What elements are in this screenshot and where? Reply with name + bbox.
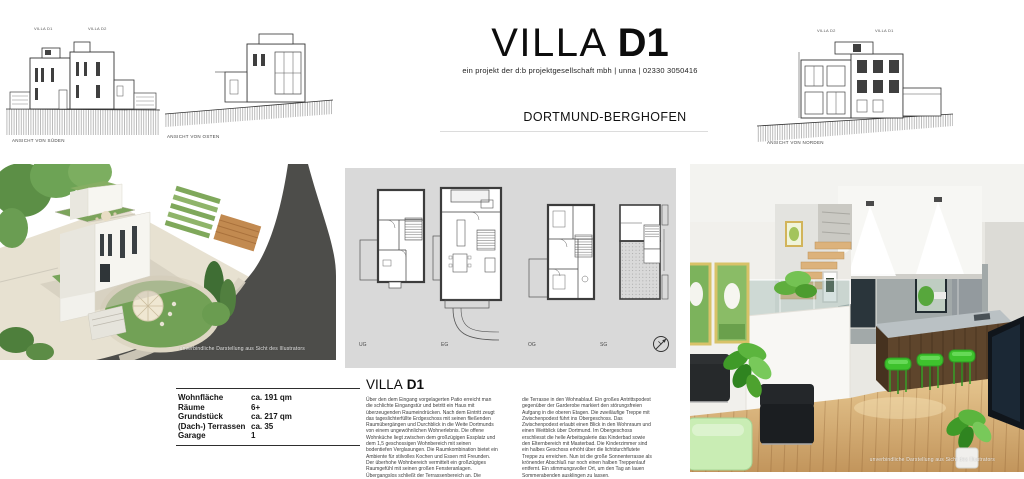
spec-row: Grundstück ca. 217 qm [178,412,360,422]
exterior-rendering-art [0,164,336,360]
interior-caption: unverbindliche Darstellung aus Sicht des… [770,457,995,463]
elevation-caption: ANSICHT VON NORDEN [767,140,824,145]
exterior-rendering: unverbindliche Darstellung aus Sicht des… [0,164,336,360]
spec-value: ca. 35 [251,422,273,432]
plan-label-eg: EG [441,342,448,348]
description-text: Über den dem Eingang vorgelagerten Patio… [366,397,658,479]
spec-label: (Dach-) Terrassen [178,422,251,432]
description-heading: VILLAD1 [366,377,424,392]
description-column-1: Über den dem Eingang vorgelagerten Patio… [366,397,498,479]
spec-row: Wohnfläche ca. 191 qm [178,393,360,403]
floorplan-drawings [345,168,676,368]
interior-rendering-art [690,164,1024,472]
title-block: VILLAD1 ein projekt der d:b projektgesel… [430,22,730,75]
specs-table: Wohnfläche ca. 191 qm Räume 6+ Grundstüc… [176,388,360,446]
spec-label: Garage [178,431,251,441]
north-arrow-icon [654,337,669,352]
elevation-south-drawing [4,30,164,142]
plan-label-ug: UG [359,342,367,348]
elevation-east: ANSICHT VON OSTEN [163,30,335,145]
spec-value: 1 [251,431,255,441]
presentation-board: VILLA D1 VILLA D2 [0,0,1024,479]
location-title: DORTMUND-BERGHOFEN [505,110,705,124]
elevation-north: VILLA D2 VILLA D1 ANS [753,16,958,156]
page-title: VILLAD1 [430,22,730,64]
spec-row: (Dach-) Terrassen ca. 35 [178,422,360,432]
spec-label: Grundstück [178,412,251,422]
plan-label-sg: SG [600,342,607,348]
elevation-caption: ANSICHT VON OSTEN [167,134,220,139]
title-light: VILLA [491,21,607,65]
elevation-east-drawing [163,30,335,130]
floorplan-panel: UG EG OG SG [345,168,676,368]
description-heading-light: VILLA [366,377,403,392]
spec-row: Räume 6+ [178,403,360,413]
interior-rendering: unverbindliche Darstellung aus Sicht des… [690,164,1024,472]
elevation-caption: ANSICHT VON SÜDEN [12,138,65,143]
spec-label: Räume [178,403,251,413]
title-bold: D1 [618,21,669,65]
wall-pictures [690,264,748,344]
elevation-south: VILLA D1 VILLA D2 [4,16,164,146]
spec-value: ca. 217 qm [251,412,292,422]
description-column-2: die Terrasse in den Wohnablauf. Ein groß… [522,397,654,479]
spec-row: Garage 1 [178,431,360,441]
elevation-north-drawing [753,30,958,148]
description-heading-bold: D1 [407,377,424,392]
title-divider [440,131,708,132]
spec-label: Wohnfläche [178,393,251,403]
exterior-caption: unverbindliche Darstellung aus Sicht des… [120,346,305,352]
spec-value: ca. 191 qm [251,393,292,403]
project-subtitle: ein projekt der d:b projektgesellschaft … [430,66,730,75]
plan-label-og: OG [528,342,536,348]
spec-value: 6+ [251,403,260,413]
